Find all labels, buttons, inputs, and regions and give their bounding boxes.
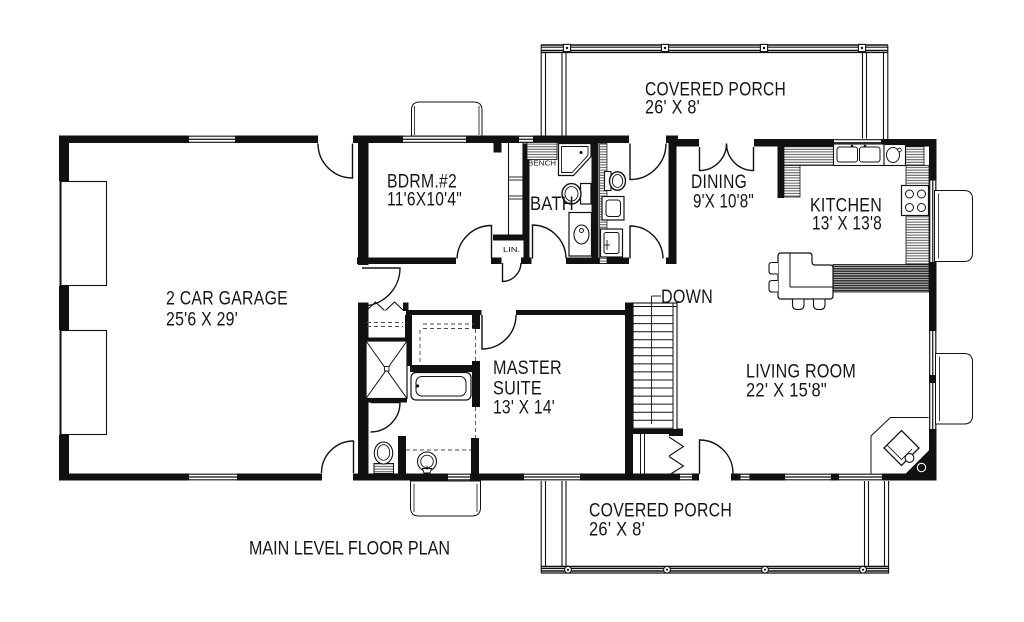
svg-text:DINING: DINING <box>691 172 747 193</box>
svg-text:22' X 15'8": 22' X 15'8" <box>746 381 827 402</box>
svg-text:11'6X10'4": 11'6X10'4" <box>387 190 462 211</box>
svg-text:LIN.: LIN. <box>503 245 520 254</box>
svg-text:DOWN: DOWN <box>661 287 713 308</box>
svg-text:9'X 10'8": 9'X 10'8" <box>693 192 754 213</box>
svg-text:LIVING ROOM: LIVING ROOM <box>746 362 856 383</box>
svg-text:COVERED PORCH: COVERED PORCH <box>589 501 732 522</box>
svg-text:13' X 14': 13' X 14' <box>493 398 555 419</box>
svg-text:26' X 8': 26' X 8' <box>645 98 700 119</box>
svg-text:BATH: BATH <box>530 194 574 215</box>
svg-text:26' X 8': 26' X 8' <box>589 520 645 541</box>
svg-text:MAIN LEVEL FLOOR PLAN: MAIN LEVEL FLOOR PLAN <box>249 538 450 560</box>
svg-text:SUITE: SUITE <box>493 379 542 400</box>
svg-text:2 CAR GARAGE: 2 CAR GARAGE <box>166 289 288 310</box>
svg-text:13' X 13'8: 13' X 13'8 <box>812 214 882 235</box>
svg-text:MASTER: MASTER <box>493 358 562 379</box>
svg-text:BENCH: BENCH <box>528 159 556 168</box>
svg-text:25'6 X 29': 25'6 X 29' <box>166 310 238 331</box>
